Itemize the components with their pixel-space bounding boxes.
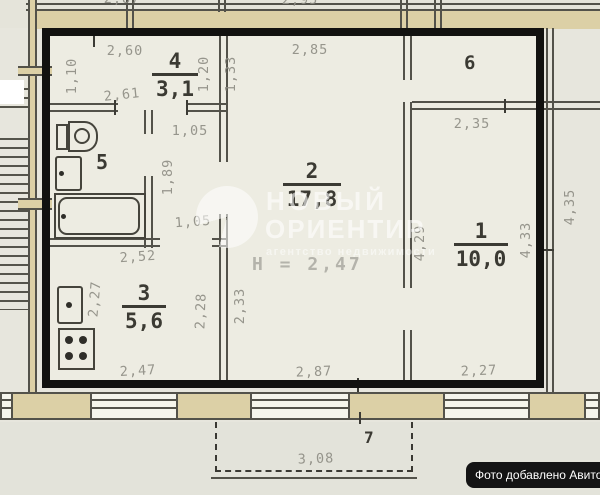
balcony-tick bbox=[359, 412, 361, 424]
kitchen-sink-drain-icon bbox=[66, 302, 72, 308]
dim-hall-right-inner: 1,20 bbox=[197, 46, 211, 102]
agency-logo-icon bbox=[196, 186, 258, 248]
dim-balcony-width: 3,08 bbox=[288, 451, 344, 467]
stove-burner-3-icon bbox=[65, 352, 73, 360]
watermark-line1: НОВЫЙ bbox=[266, 186, 388, 217]
room3-number: 3 bbox=[122, 282, 167, 308]
bathtub-inner-icon bbox=[58, 197, 140, 235]
upper-wall-stub-4 bbox=[434, 0, 442, 29]
dim-corridor-length: 1,89 bbox=[161, 149, 175, 205]
wall-neighbour-vertical bbox=[546, 28, 554, 392]
staircase-steps bbox=[0, 138, 28, 310]
room4-number: 4 bbox=[152, 50, 198, 76]
room5-label: 5 bbox=[96, 150, 108, 174]
wash-basin-tap-icon bbox=[59, 171, 64, 176]
window-room1 bbox=[443, 394, 530, 418]
room3-area: 5,6 bbox=[112, 308, 176, 332]
scan-white-patch bbox=[0, 80, 24, 104]
room1-area: 10,0 bbox=[442, 246, 520, 270]
ceiling-height-note: Н = 2,47 bbox=[252, 254, 363, 275]
toilet-seat-icon bbox=[74, 128, 90, 144]
dim-outside-right: 4,35 bbox=[563, 179, 577, 235]
dim-hall-top: 2,60 bbox=[97, 44, 153, 58]
dim-room2-bottom: 2,87 bbox=[286, 364, 342, 380]
room2-number: 2 bbox=[283, 160, 342, 186]
room6-label: 6 bbox=[464, 52, 475, 74]
window-kitchen bbox=[90, 394, 178, 418]
dim-room2-left-upper: 1,33 bbox=[224, 46, 238, 102]
room1-label: 1 10,0 bbox=[442, 220, 520, 270]
watermark-line2: ОРИЕНТИР bbox=[265, 214, 425, 245]
dim-corridor-top: 1,05 bbox=[162, 124, 218, 138]
window-far-left bbox=[0, 394, 13, 418]
stove-burner-4-icon bbox=[79, 352, 87, 360]
dim-room1-bottom: 2,27 bbox=[451, 363, 507, 379]
dim-room2-left-lower: 2,33 bbox=[233, 278, 247, 334]
staircase-wall bbox=[28, 0, 37, 394]
stove-icon bbox=[58, 328, 95, 370]
upper-wall-stub-2 bbox=[218, 0, 226, 12]
photo-source-badge: Фото добавлено Авито bbox=[466, 462, 600, 488]
window-room2 bbox=[250, 394, 350, 418]
floor-plan-image: 2,87 2,95 7 3,08 bbox=[0, 0, 600, 495]
dim-room1-right: 4,33 bbox=[519, 212, 533, 268]
stove-burner-2-icon bbox=[79, 336, 87, 344]
bottom-exterior-wall bbox=[0, 392, 600, 420]
dim-kitchen-bottom: 2,47 bbox=[110, 363, 167, 380]
upper-wall-stub-3 bbox=[400, 0, 408, 29]
dim-room6-width: 2,35 bbox=[444, 117, 500, 131]
room3-label: 3 5,6 bbox=[112, 282, 176, 332]
window-far-right bbox=[584, 394, 600, 418]
dim-top-left-cut: 2,87 bbox=[94, 0, 150, 6]
dim-room2-top: 2,85 bbox=[282, 43, 338, 57]
stove-burner-1-icon bbox=[65, 336, 73, 344]
toilet-tank-icon bbox=[56, 124, 68, 150]
room7-label: 7 bbox=[364, 428, 374, 447]
room1-number: 1 bbox=[454, 220, 509, 246]
bathtub-tap-icon bbox=[61, 214, 66, 219]
dim-hall-left: 1,10 bbox=[65, 48, 79, 104]
dim-top-mid-cut: 2,95 bbox=[272, 0, 328, 7]
balcony-slab-edge bbox=[211, 477, 417, 479]
dim-kitchen-right: 2,28 bbox=[193, 283, 209, 339]
upper-wall-fill bbox=[28, 11, 600, 29]
